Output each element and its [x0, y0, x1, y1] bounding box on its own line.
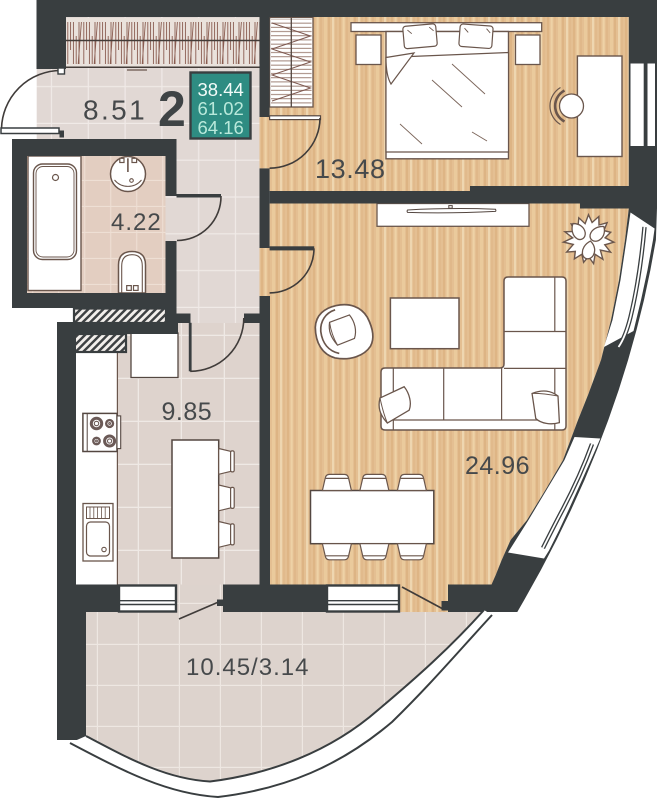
svg-text:10.45/3.14: 10.45/3.14 — [186, 654, 309, 681]
svg-text:24.96: 24.96 — [465, 452, 530, 480]
svg-text:64.16: 64.16 — [198, 117, 244, 138]
svg-text:38.44: 38.44 — [198, 79, 244, 100]
svg-text:2: 2 — [158, 81, 186, 137]
svg-text:13.48: 13.48 — [315, 154, 386, 184]
svg-text:9.85: 9.85 — [162, 398, 213, 426]
svg-text:4.22: 4.22 — [111, 209, 162, 236]
svg-text:8.51: 8.51 — [83, 95, 147, 126]
svg-text:61.02: 61.02 — [198, 98, 244, 119]
